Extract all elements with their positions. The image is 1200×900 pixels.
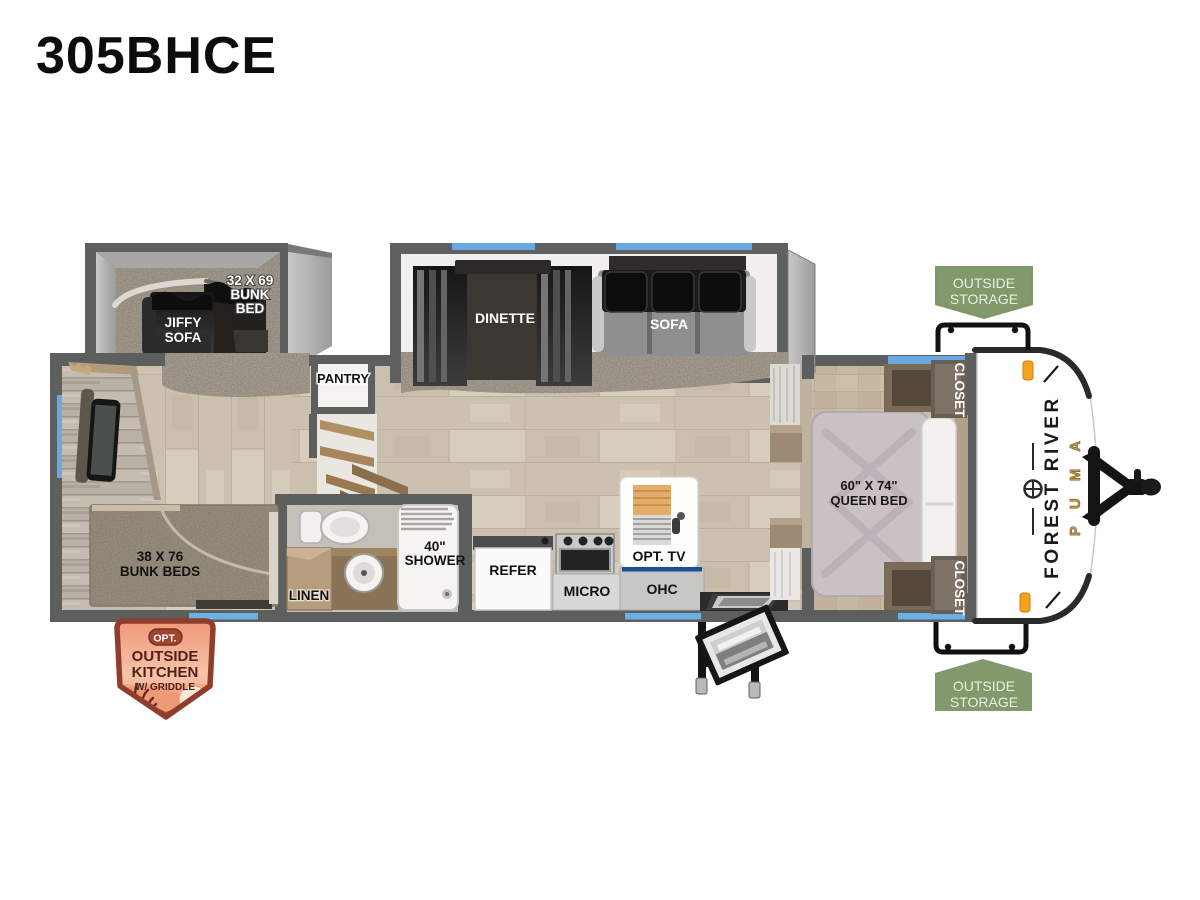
svg-text:38 X 76: 38 X 76: [137, 549, 184, 564]
svg-text:KITCHEN: KITCHEN: [132, 664, 199, 681]
svg-text:OUTSIDE: OUTSIDE: [953, 678, 1015, 694]
svg-text:305BHCE: 305BHCE: [36, 27, 277, 85]
svg-text:BUNK BEDS: BUNK BEDS: [120, 564, 200, 579]
svg-text:QUEEN BED: QUEEN BED: [830, 493, 907, 508]
svg-text:SOFA: SOFA: [650, 316, 688, 332]
svg-text:40": 40": [424, 539, 445, 554]
svg-text:CLOSET: CLOSET: [952, 561, 967, 617]
svg-text:BUNK: BUNK: [231, 287, 270, 302]
svg-text:REFER: REFER: [489, 562, 536, 578]
svg-text:JIFFY: JIFFY: [165, 315, 202, 330]
svg-text:W/ GRIDDLE: W/ GRIDDLE: [135, 682, 195, 693]
svg-text:OUTSIDE: OUTSIDE: [953, 275, 1015, 291]
svg-text:32 X 69: 32 X 69: [227, 273, 274, 288]
svg-text:PUMA: PUMA: [1067, 424, 1084, 536]
svg-text:PANTRY: PANTRY: [317, 371, 369, 386]
svg-text:OPT.: OPT.: [153, 633, 176, 645]
svg-text:FOREST RIVER: FOREST RIVER: [1042, 395, 1063, 579]
svg-text:SOFA: SOFA: [165, 330, 202, 345]
svg-text:SHOWER: SHOWER: [405, 553, 466, 568]
svg-text:DINETTE: DINETTE: [475, 310, 535, 326]
svg-text:CLOSET: CLOSET: [952, 363, 967, 419]
svg-text:OUTSIDE: OUTSIDE: [132, 648, 199, 665]
svg-text:STORAGE: STORAGE: [950, 291, 1018, 307]
svg-text:STORAGE: STORAGE: [950, 694, 1018, 710]
svg-text:60" X 74": 60" X 74": [840, 478, 897, 493]
svg-text:MICRO: MICRO: [564, 583, 611, 599]
svg-text:OHC: OHC: [646, 581, 677, 597]
svg-text:BED: BED: [236, 301, 265, 316]
svg-text:OPT. TV: OPT. TV: [633, 548, 687, 564]
svg-text:LINEN: LINEN: [289, 588, 330, 603]
